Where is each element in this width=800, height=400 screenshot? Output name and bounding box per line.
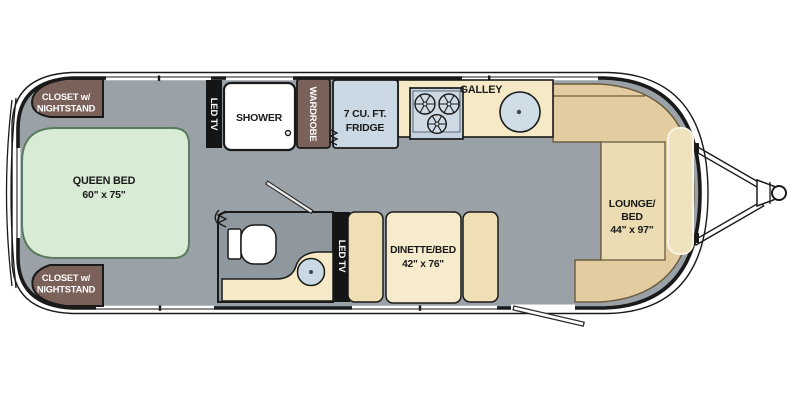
hitch-ball-socket — [772, 186, 786, 200]
burner — [415, 94, 435, 114]
lounge-label: BED — [621, 211, 643, 223]
lounge-cushion — [668, 128, 693, 254]
toilet — [228, 225, 276, 264]
lounge-dimensions: 44" x 97" — [610, 224, 653, 236]
wardrobe-label: WARDROBE — [307, 87, 318, 142]
fridge-label: FRIDGE — [346, 122, 385, 134]
floorplan-canvas: CLOSET w/ NIGHTSTAND CLOSET w/ NIGHTSTAN… — [0, 0, 800, 400]
queen-bed-label: QUEEN BED — [73, 175, 136, 187]
lounge-label: LOUNGE/ — [609, 198, 656, 210]
closet-bottom-label: NIGHTSTAND — [37, 285, 96, 295]
led-tv-bedroom-label: LED TV — [208, 98, 219, 131]
dinette-dimensions: 42" x 76" — [402, 259, 444, 270]
galley-label: GALLEY — [460, 84, 504, 96]
dinette-left-seat — [348, 212, 383, 302]
led-tv-dinette-label: LED TV — [336, 240, 347, 273]
shower-drain — [286, 131, 291, 136]
fridge-label: 7 CU. FT. — [344, 108, 387, 120]
shower-label: SHOWER — [236, 112, 283, 124]
dinette-table — [386, 212, 461, 303]
queen-bed-dimensions: 60" x 75" — [82, 189, 125, 201]
bathroom-sink-drain — [309, 270, 313, 274]
galley-sink-drain — [517, 110, 521, 114]
closet-top-label: NIGHTSTAND — [37, 104, 96, 114]
closet-bottom-label: CLOSET w/ — [42, 273, 91, 283]
stove — [410, 88, 463, 139]
burner — [439, 94, 459, 114]
floorplan-drawing: CLOSET w/ NIGHTSTAND CLOSET w/ NIGHTSTAN… — [0, 0, 800, 400]
closet-top-label: CLOSET w/ — [42, 92, 91, 102]
burner — [428, 115, 447, 134]
dinette-right-seat — [463, 212, 498, 302]
dinette-label: DINETTE/BED — [390, 245, 456, 256]
